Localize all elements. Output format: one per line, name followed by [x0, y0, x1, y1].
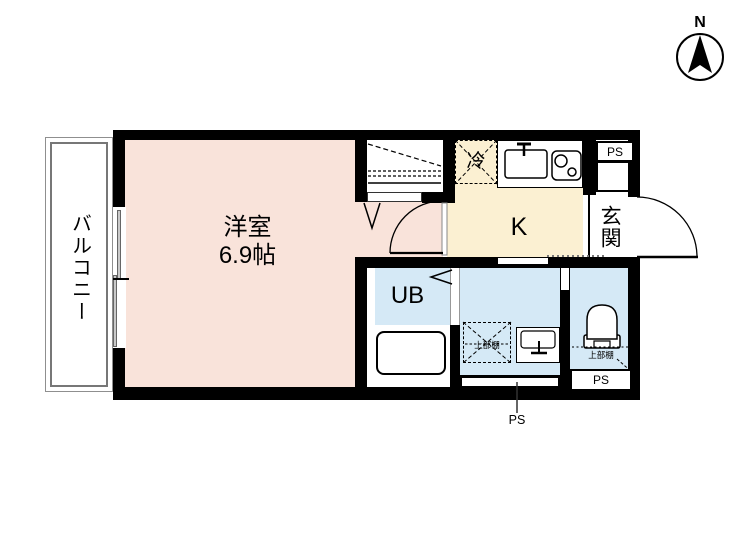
toilet-shelf-label: 上部棚	[580, 350, 622, 362]
wall-kitchen-entrance	[583, 130, 596, 195]
entrance-label: 玄関	[595, 198, 623, 256]
pipe-space-top: PS	[596, 141, 634, 162]
toilet-door-opening	[561, 268, 569, 290]
balcony: バルコニー	[45, 137, 113, 392]
wall-top	[113, 130, 640, 140]
bathtub	[376, 331, 446, 375]
pipe-space-top-label: PS	[607, 145, 623, 159]
pipe-space-duct	[462, 378, 558, 386]
entrance-floor-edge	[588, 195, 590, 257]
closet-icon	[368, 144, 441, 183]
closet-door-track	[367, 192, 422, 202]
western-room-name: 洋室	[224, 214, 272, 242]
wall-bottom	[113, 387, 640, 400]
washroom-shelf-label: 上部棚	[465, 340, 509, 352]
pipe-space-toilet-label: PS	[593, 373, 609, 387]
unit-bath-door-track	[450, 268, 460, 325]
shoe-cabinet	[596, 161, 630, 192]
compass-icon	[677, 34, 723, 80]
wall-left-upper	[113, 140, 125, 207]
kitchen-label: K	[480, 210, 558, 244]
wall-closet-corner	[422, 192, 455, 203]
unit-bath-label: UB	[380, 283, 435, 309]
western-room-label: 洋室 6.9帖	[150, 212, 345, 272]
wall-room-closet	[355, 140, 367, 202]
balcony-label: バルコニー	[46, 168, 112, 368]
pipe-space-toilet: PS	[570, 369, 632, 391]
pipe-space-bottom-label: PS	[502, 413, 532, 428]
washbasin	[516, 327, 560, 363]
compass-north-label: N	[688, 13, 712, 33]
kitchen-counter	[497, 140, 583, 188]
floor-plan: バルコニー 冷 PS PS	[0, 0, 750, 550]
washroom-sliding-door-opening	[498, 258, 548, 264]
wall-ub-left	[355, 257, 367, 387]
western-room-floor-extension	[355, 202, 443, 257]
entrance-door-icon	[637, 197, 698, 257]
western-room-size: 6.9帖	[219, 242, 276, 270]
wall-left-lower	[113, 348, 125, 390]
window-pane-icon	[113, 275, 117, 347]
window-pane-icon	[117, 210, 121, 280]
refrigerator-label: 冷	[455, 140, 497, 184]
